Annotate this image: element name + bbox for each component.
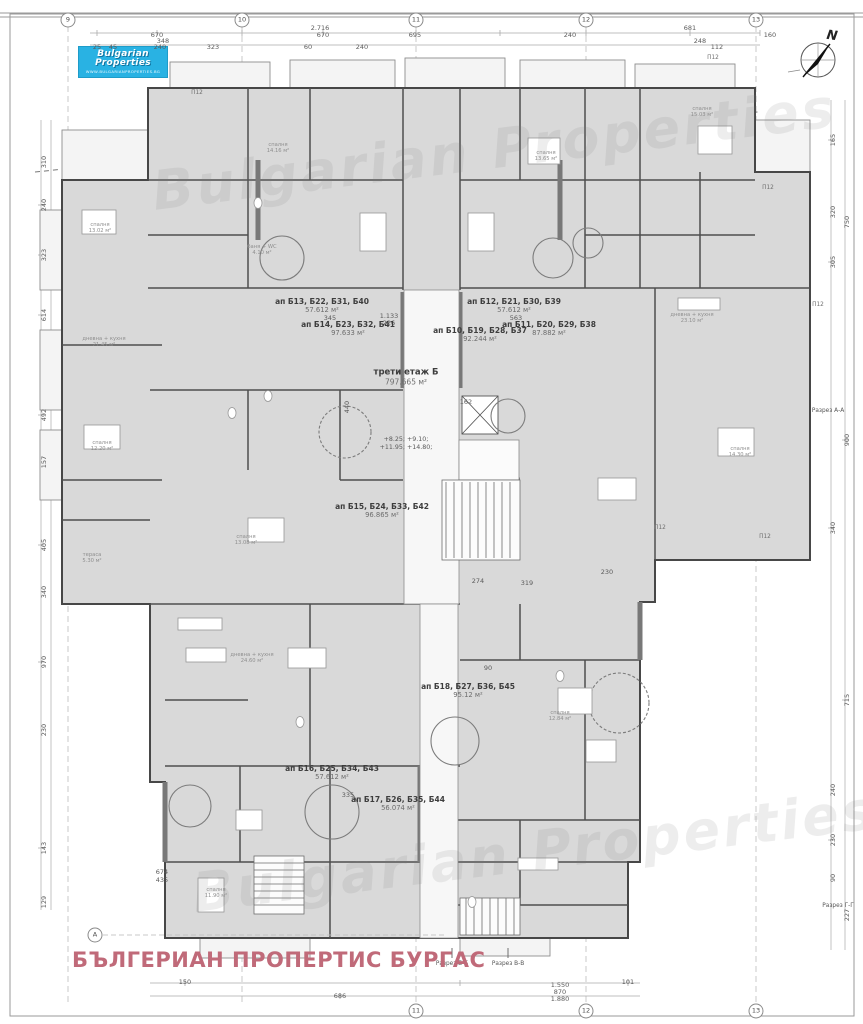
north-arrow-icon <box>788 43 835 77</box>
agency-logo: Bulgarian Properties WWW.BULGARIANPROPER… <box>78 46 168 78</box>
logo-url: WWW.BULGARIANPROPERTIES.BG <box>86 69 161 74</box>
elevation-line1: +8.25; +9.10; <box>380 436 433 444</box>
elevation-marks: +8.25; +9.10; +11.95; +14.80; <box>380 436 433 452</box>
logo-line2: Properties <box>95 59 151 68</box>
floor-area: 797.665 м² <box>374 378 439 387</box>
elevation-line2: +11.95; +14.80; <box>380 444 433 452</box>
elevator <box>462 396 498 434</box>
floor-name: трети етаж Б <box>374 368 439 378</box>
drawing-sheet: Bulgarian Properties Bulgarian Propertie… <box>0 0 863 1024</box>
floor-title: трети етаж Б 797.665 м² <box>374 368 439 387</box>
north-label: N <box>826 28 839 44</box>
agency-title: БЪЛГЕРИАН ПРОПЕРТИС БУРГАС <box>72 948 485 972</box>
